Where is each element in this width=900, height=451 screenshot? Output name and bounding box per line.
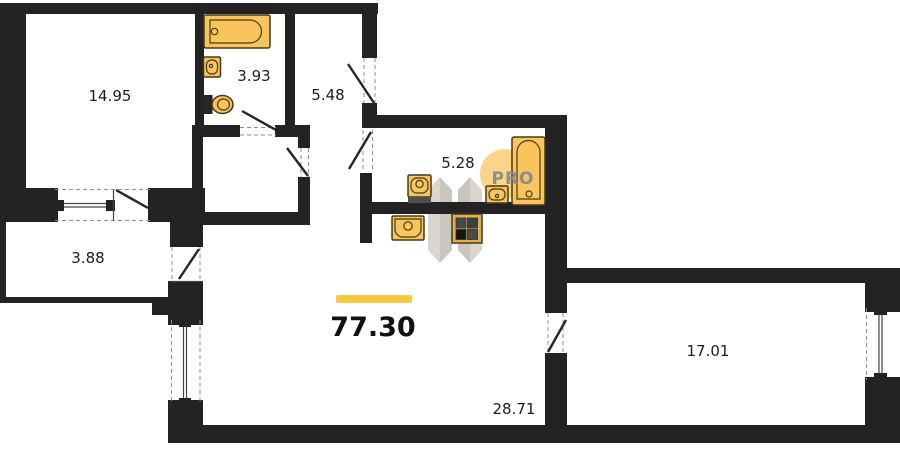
wall-1701-right-bottom <box>865 377 900 425</box>
wall-closet-left <box>192 137 203 213</box>
door-entry <box>348 58 375 103</box>
area-label-548: 5.48 <box>311 86 344 104</box>
wall-balcony-junction <box>152 297 170 315</box>
window-1495-balcony <box>55 190 150 222</box>
wall-bottom <box>168 425 900 443</box>
floor-plan-svg: 14.95 3.93 5.48 5.28 3.88 28.71 17.01 77… <box>0 0 900 451</box>
wall-closet-bottom <box>200 212 310 225</box>
door-1495-balcony <box>116 190 148 208</box>
wall-balcony-bottom <box>0 297 172 303</box>
total-area-accent-bar <box>336 295 412 303</box>
wall-closet-right-top <box>298 137 310 148</box>
area-label-528: 5.28 <box>441 154 474 172</box>
wall-divider-393-548 <box>285 13 295 127</box>
wall-393-bottom-left <box>192 125 240 137</box>
wall-top <box>0 3 378 14</box>
washbasin-main-icon <box>408 175 431 203</box>
wall-1701-top <box>558 268 900 283</box>
toilet-icon <box>204 95 234 114</box>
wall-left-upper <box>0 3 26 189</box>
window-1701-right <box>867 307 888 381</box>
wall-divider-1495-393 <box>195 13 204 126</box>
door-bathroom-main <box>349 130 373 172</box>
area-label-1495: 14.95 <box>89 87 132 105</box>
wall-corridor-right-top <box>362 13 377 58</box>
wall-closet-right-bottom <box>298 177 310 213</box>
stove-icon <box>452 214 482 243</box>
kitchen-sink-icon <box>392 216 424 240</box>
area-label-393: 3.93 <box>237 67 270 85</box>
watermark-pro-label: PRO <box>491 169 534 189</box>
total-area-label: 77.30 <box>330 312 415 343</box>
door-bathroom-small <box>240 111 276 135</box>
window-living-left <box>172 319 201 406</box>
wall-bath528-top <box>362 115 567 128</box>
floor-plan: 14.95 3.93 5.48 5.28 3.88 28.71 17.01 77… <box>0 0 900 451</box>
door-closet <box>287 148 309 177</box>
wall-left-seg1 <box>170 222 203 247</box>
wall-right-mid <box>545 115 567 313</box>
wall-bath528-left <box>360 173 372 243</box>
door-living-balcony <box>170 247 203 282</box>
wall-left-seg2 <box>168 281 203 325</box>
washbasin-small-icon <box>204 57 221 77</box>
wall-393-bottom-right <box>275 125 310 137</box>
area-label-1701: 17.01 <box>687 342 730 360</box>
door-bedroom-right <box>548 313 566 353</box>
bathtub-horizontal-icon <box>204 15 270 48</box>
area-label-388: 3.88 <box>71 249 104 267</box>
area-label-2871: 28.71 <box>493 400 536 418</box>
wall-band-left <box>0 188 58 222</box>
wall-right-low <box>545 353 567 425</box>
wall-balcony-left <box>0 222 6 303</box>
